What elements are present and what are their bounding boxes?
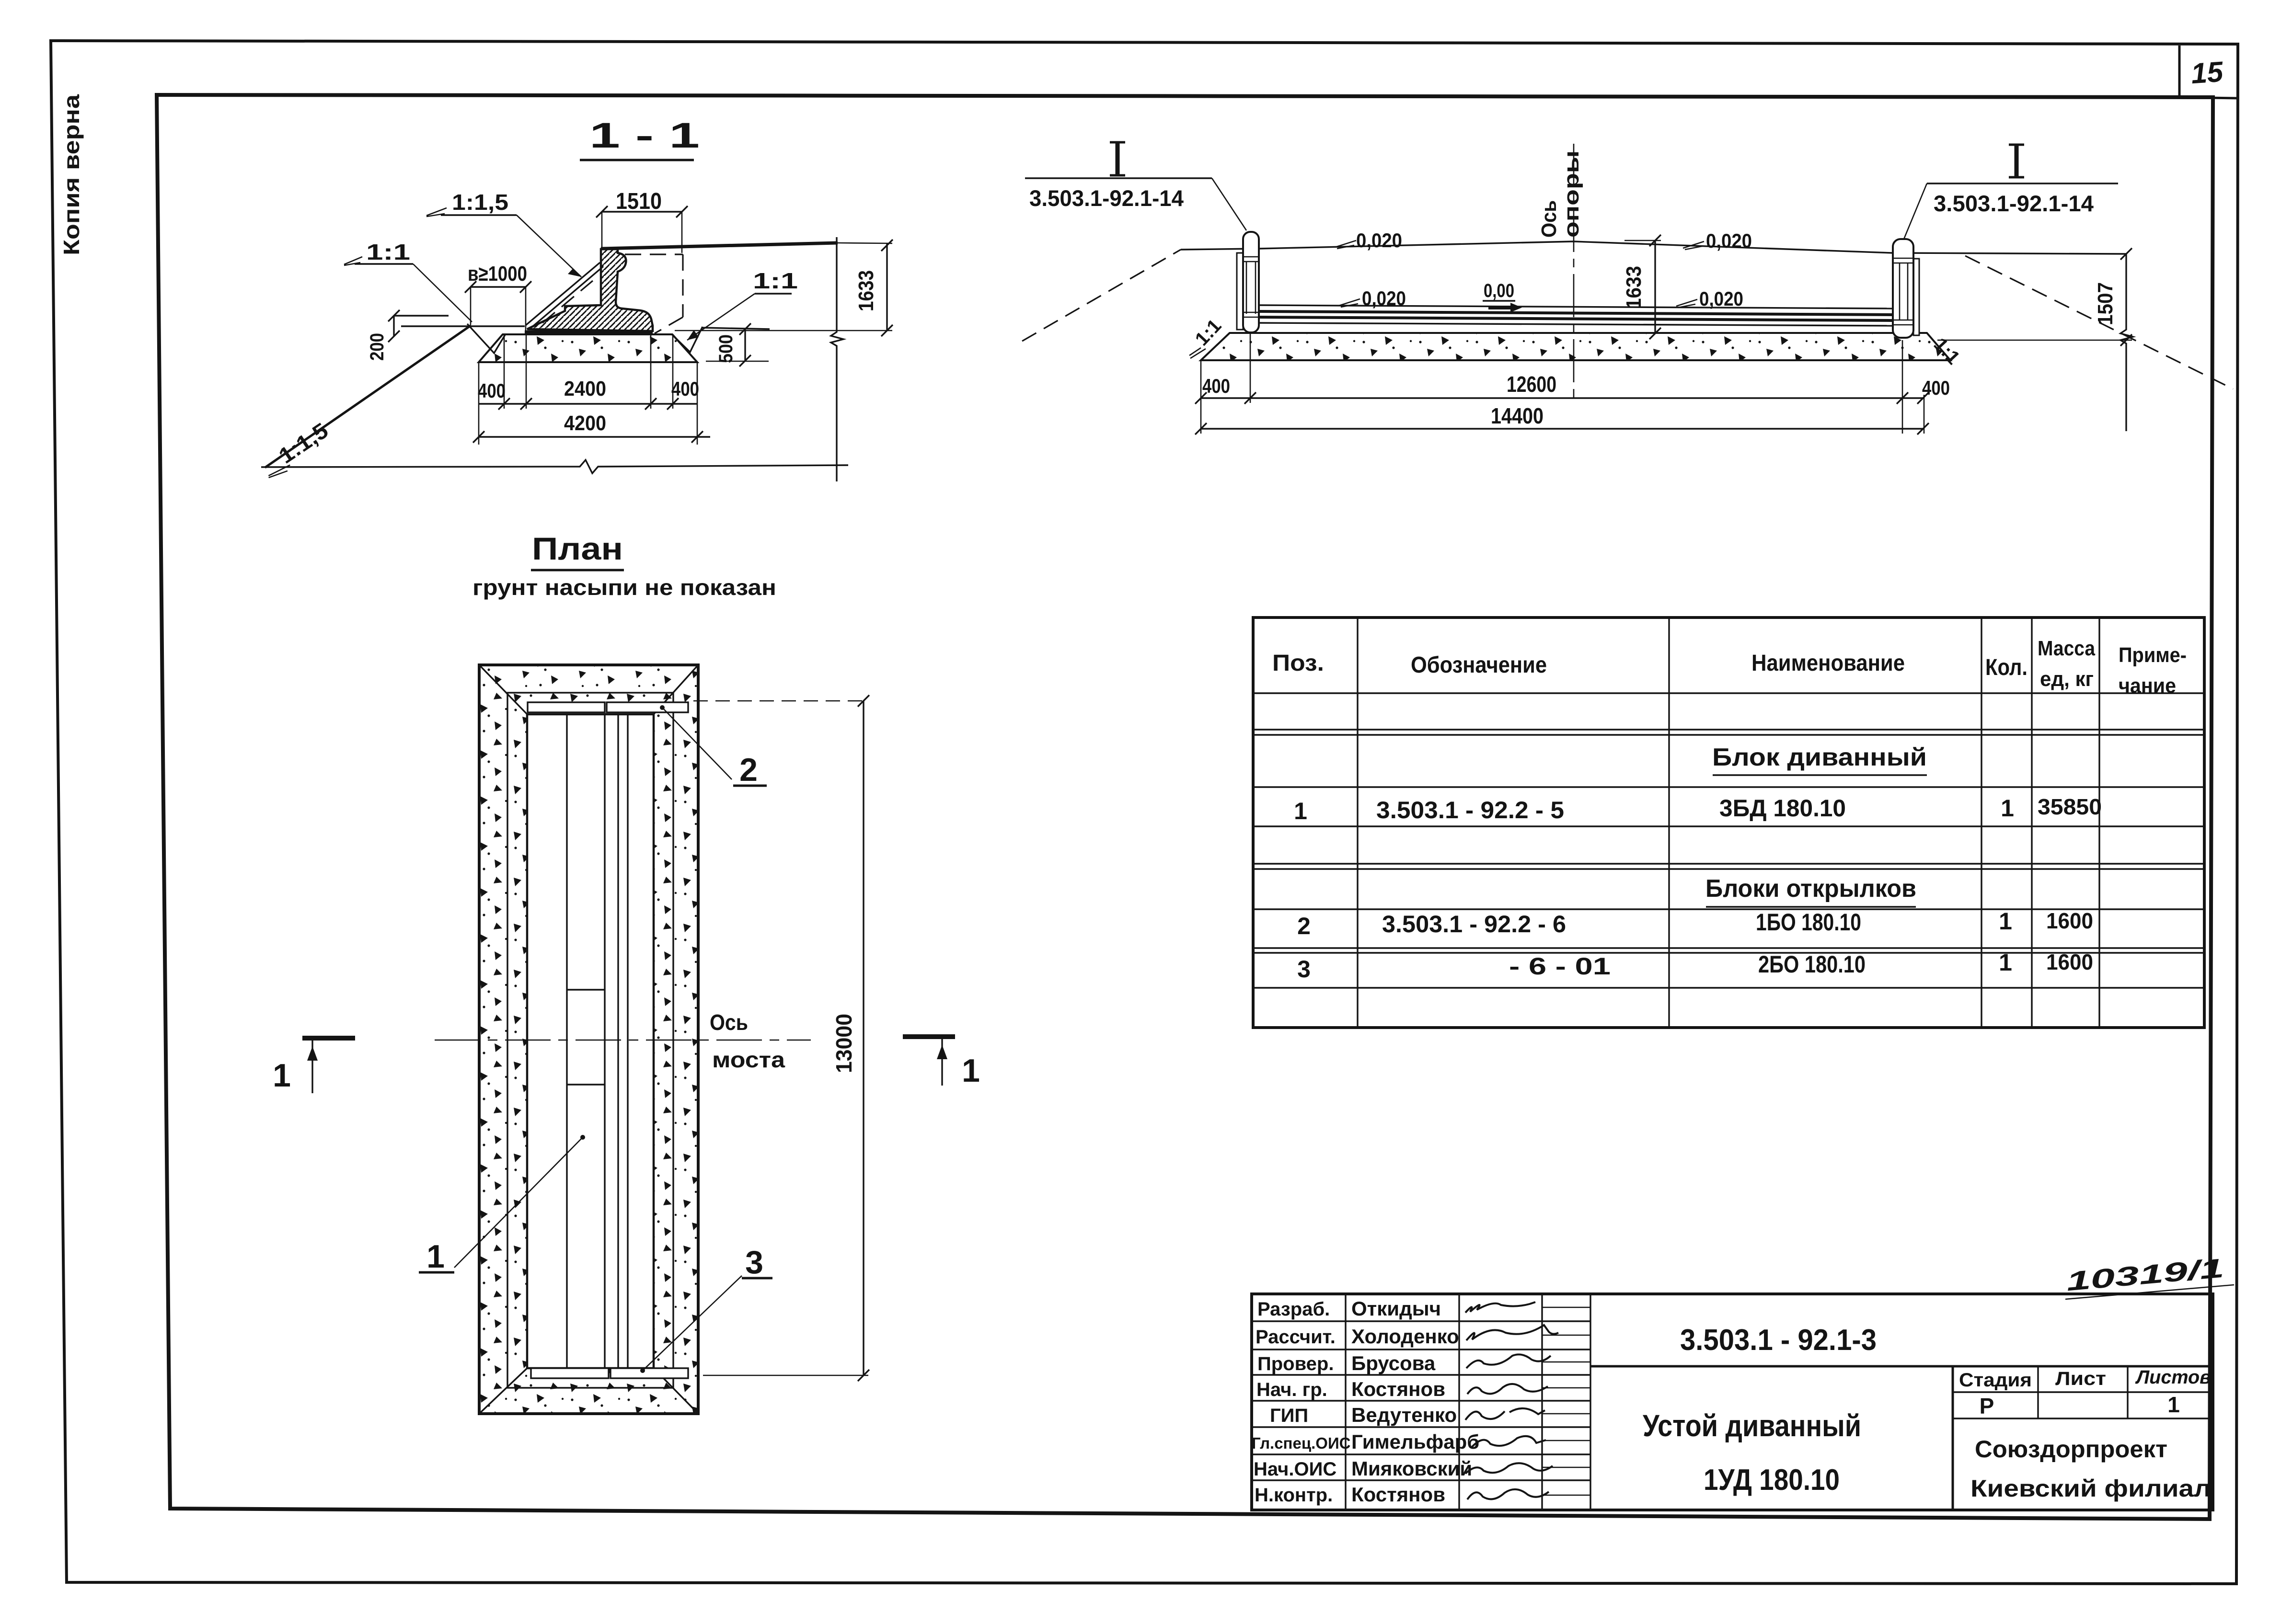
svg-text:13000: 13000 <box>831 1014 856 1073</box>
svg-text:0,020: 0,020 <box>1356 229 1402 252</box>
svg-text:Блоки открылков: Блоки открылков <box>1705 875 1916 903</box>
svg-text:Обозначение: Обозначение <box>1411 652 1547 678</box>
svg-text:План: План <box>532 531 623 566</box>
svg-text:Нач. гр.: Нач. гр. <box>1256 1379 1327 1400</box>
svg-text:1: 1 <box>962 1052 980 1089</box>
svg-text:1:1: 1:1 <box>753 268 798 293</box>
svg-text:Холоденко: Холоденко <box>1351 1325 1459 1348</box>
svg-text:Гимельфарб: Гимельфарб <box>1351 1430 1479 1453</box>
svg-text:1: 1 <box>1294 798 1307 824</box>
svg-text:Откидыч: Откидыч <box>1351 1297 1441 1320</box>
svg-text:400: 400 <box>671 377 699 400</box>
svg-text:Р: Р <box>1980 1394 1994 1418</box>
svg-text:12600: 12600 <box>1507 372 1556 397</box>
svg-text:Киевский филиал: Киевский филиал <box>1970 1475 2211 1502</box>
svg-text:14400: 14400 <box>1491 403 1544 428</box>
svg-text:1633: 1633 <box>1622 266 1646 309</box>
svg-text:1600: 1600 <box>2046 908 2093 933</box>
svg-text:15: 15 <box>2190 56 2225 90</box>
svg-text:ед, кг: ед, кг <box>2040 667 2094 691</box>
svg-text:1БО 180.10: 1БО 180.10 <box>1756 909 1861 936</box>
svg-text:Масса: Масса <box>2038 637 2095 660</box>
svg-text:Рассчит.: Рассчит. <box>1256 1327 1336 1348</box>
svg-text:Ведутенко: Ведутенко <box>1351 1404 1457 1426</box>
svg-text:0,020: 0,020 <box>1706 229 1752 252</box>
svg-text:Лист: Лист <box>2055 1368 2106 1389</box>
svg-text:1507: 1507 <box>2094 282 2117 325</box>
svg-text:1510: 1510 <box>616 189 662 214</box>
svg-text:1: 1 <box>2167 1392 2180 1417</box>
svg-text:200: 200 <box>367 333 388 361</box>
svg-text:2: 2 <box>1297 913 1311 939</box>
svg-text:3.503.1-92.1-14: 3.503.1-92.1-14 <box>1934 191 2094 216</box>
svg-text:1 - 1: 1 - 1 <box>589 115 700 155</box>
svg-text:0,020: 0,020 <box>1699 287 1743 310</box>
svg-text:Гл.спец.ОИС: Гл.спец.ОИС <box>1252 1434 1351 1452</box>
svg-text:400: 400 <box>478 379 506 402</box>
svg-text:ГИП: ГИП <box>1270 1405 1308 1426</box>
svg-text:1УД 180.10: 1УД 180.10 <box>1704 1464 1840 1497</box>
svg-text:- 6 - 01: - 6 - 01 <box>1509 953 1611 980</box>
svg-text:Разраб.: Разраб. <box>1257 1299 1330 1320</box>
svg-text:400: 400 <box>1922 377 1950 399</box>
svg-text:Костянов: Костянов <box>1351 1483 1445 1506</box>
svg-text:3: 3 <box>1297 956 1311 983</box>
svg-text:2БО 180.10: 2БО 180.10 <box>1758 951 1866 978</box>
svg-text:Блок диванный: Блок диванный <box>1712 743 1927 771</box>
svg-text:Копия верна: Копия верна <box>59 94 84 255</box>
svg-text:3БД 180.10: 3БД 180.10 <box>1719 795 1846 822</box>
svg-text:35850: 35850 <box>2038 794 2102 819</box>
svg-text:3.503.1 - 92.2 - 6: 3.503.1 - 92.2 - 6 <box>1382 911 1566 938</box>
svg-text:4200: 4200 <box>564 412 606 435</box>
svg-text:Нач.ОИС: Нач.ОИС <box>1254 1459 1336 1480</box>
svg-text:Союздорпроект: Союздорпроект <box>1975 1436 2167 1463</box>
svg-text:1:1,5: 1:1,5 <box>452 190 508 215</box>
svg-text:1: 1 <box>273 1057 291 1094</box>
svg-text:0,020: 0,020 <box>1362 287 1406 309</box>
svg-text:Кол.: Кол. <box>1985 655 2028 680</box>
svg-text:3: 3 <box>745 1244 763 1281</box>
svg-text:Провер.: Провер. <box>1257 1353 1334 1374</box>
svg-text:Ось: Ось <box>710 1010 748 1035</box>
svg-text:3.503.1 - 92.1-3: 3.503.1 - 92.1-3 <box>1680 1324 1877 1357</box>
svg-text:Устой диванный: Устой диванный <box>1643 1408 1861 1443</box>
svg-text:Н.контр.: Н.контр. <box>1255 1485 1333 1506</box>
svg-text:500: 500 <box>715 334 737 363</box>
svg-text:1:1: 1:1 <box>366 240 410 264</box>
svg-text:2400: 2400 <box>564 377 606 400</box>
svg-text:1600: 1600 <box>2046 949 2093 974</box>
svg-text:3.503.1-92.1-14: 3.503.1-92.1-14 <box>1029 185 1184 211</box>
svg-text:1: 1 <box>1999 949 2012 976</box>
svg-text:грунт насыпи не показан: грунт насыпи не показан <box>472 575 776 600</box>
svg-text:Листов: Листов <box>2135 1367 2211 1388</box>
svg-text:3.503.1 - 92.2 - 5: 3.503.1 - 92.2 - 5 <box>1376 797 1564 823</box>
svg-text:Брусова: Брусова <box>1351 1352 1436 1374</box>
svg-text:1: 1 <box>426 1238 445 1275</box>
svg-text:1633: 1633 <box>854 270 878 311</box>
svg-text:Наименование: Наименование <box>1751 651 1905 676</box>
svg-text:моста: моста <box>712 1047 785 1072</box>
svg-text:400: 400 <box>1202 375 1230 397</box>
svg-text:1: 1 <box>1999 908 2012 935</box>
svg-text:Мияковский: Мияковский <box>1351 1457 1472 1480</box>
svg-text:0,00: 0,00 <box>1484 280 1514 301</box>
svg-text:Стадия: Стадия <box>1959 1370 2032 1391</box>
svg-text:Поз.: Поз. <box>1272 651 1324 676</box>
svg-text:чание: чание <box>2119 674 2176 698</box>
svg-text:Ось: Ось <box>1537 200 1561 238</box>
svg-text:1: 1 <box>2001 795 2014 822</box>
svg-text:Приме-: Приме- <box>2119 643 2187 667</box>
svg-text:Костянов: Костянов <box>1351 1378 1445 1400</box>
svg-text:2: 2 <box>739 752 758 788</box>
svg-text:опоры: опоры <box>1560 150 1583 238</box>
